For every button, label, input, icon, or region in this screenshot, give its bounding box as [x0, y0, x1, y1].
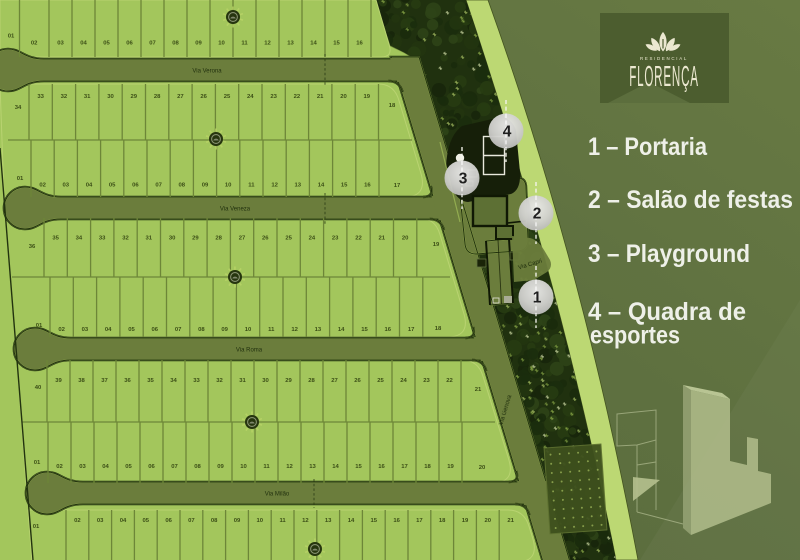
svg-text:4: 4: [503, 124, 512, 141]
svg-text:21: 21: [379, 236, 386, 242]
svg-text:Via Veneza: Via Veneza: [220, 207, 251, 213]
svg-text:14: 14: [332, 464, 339, 470]
svg-text:3 – Playground: 3 – Playground: [588, 240, 750, 268]
svg-text:32: 32: [61, 94, 68, 100]
svg-text:02: 02: [74, 518, 81, 524]
svg-text:02: 02: [31, 41, 38, 47]
svg-text:33: 33: [193, 378, 200, 384]
svg-text:03: 03: [82, 327, 89, 333]
svg-text:38: 38: [78, 378, 85, 384]
svg-text:22: 22: [294, 94, 301, 100]
svg-text:08: 08: [172, 41, 179, 47]
svg-text:10: 10: [245, 327, 252, 333]
svg-text:15: 15: [371, 518, 378, 524]
svg-text:16: 16: [393, 518, 400, 524]
svg-text:23: 23: [423, 378, 430, 384]
svg-text:40: 40: [35, 385, 42, 391]
svg-text:33: 33: [37, 94, 44, 100]
svg-text:18: 18: [389, 103, 396, 109]
svg-text:24: 24: [309, 236, 316, 242]
svg-text:17: 17: [408, 327, 415, 333]
svg-text:20: 20: [340, 94, 347, 100]
svg-text:04: 04: [105, 327, 112, 333]
svg-text:07: 07: [188, 518, 195, 524]
svg-text:05: 05: [125, 464, 132, 470]
svg-text:06: 06: [165, 518, 172, 524]
svg-text:3: 3: [459, 171, 468, 188]
svg-text:16: 16: [356, 41, 363, 47]
svg-text:09: 09: [195, 41, 202, 47]
svg-text:14: 14: [310, 41, 317, 47]
svg-text:03: 03: [63, 183, 70, 189]
svg-text:esportes: esportes: [590, 322, 680, 350]
svg-text:02: 02: [56, 464, 63, 470]
svg-text:29: 29: [192, 236, 199, 242]
svg-text:Via Roma: Via Roma: [236, 348, 263, 354]
svg-text:15: 15: [333, 41, 340, 47]
svg-text:09: 09: [217, 464, 224, 470]
svg-text:36: 36: [29, 244, 36, 250]
svg-text:10: 10: [240, 464, 247, 470]
svg-text:1: 1: [533, 290, 542, 307]
svg-text:27: 27: [331, 378, 338, 384]
svg-text:29: 29: [285, 378, 292, 384]
svg-text:03: 03: [97, 518, 104, 524]
svg-text:21: 21: [317, 94, 324, 100]
svg-text:17: 17: [394, 183, 401, 189]
svg-text:22: 22: [446, 378, 453, 384]
svg-text:15: 15: [341, 183, 348, 189]
svg-text:01: 01: [33, 524, 40, 530]
svg-text:19: 19: [447, 464, 454, 470]
svg-text:13: 13: [287, 41, 294, 47]
svg-text:25: 25: [285, 236, 292, 242]
svg-text:05: 05: [109, 183, 116, 189]
svg-text:17: 17: [401, 464, 408, 470]
svg-text:01: 01: [8, 34, 15, 40]
svg-text:04: 04: [102, 464, 109, 470]
svg-text:05: 05: [103, 41, 110, 47]
svg-text:Via Milão: Via Milão: [265, 492, 290, 498]
svg-text:05: 05: [143, 518, 150, 524]
svg-text:14: 14: [318, 183, 325, 189]
svg-text:26: 26: [200, 94, 207, 100]
svg-text:30: 30: [262, 378, 269, 384]
svg-text:22: 22: [355, 236, 362, 242]
svg-text:06: 06: [148, 464, 155, 470]
svg-text:04: 04: [120, 518, 127, 524]
svg-text:30: 30: [169, 236, 176, 242]
svg-text:26: 26: [354, 378, 361, 384]
svg-text:17: 17: [416, 518, 423, 524]
svg-text:03: 03: [79, 464, 86, 470]
svg-text:FLORENÇA: FLORENÇA: [629, 60, 699, 93]
svg-text:32: 32: [122, 236, 129, 242]
svg-text:04: 04: [80, 41, 87, 47]
svg-text:28: 28: [308, 378, 315, 384]
svg-text:09: 09: [202, 183, 209, 189]
svg-text:12: 12: [286, 464, 293, 470]
svg-text:24: 24: [400, 378, 407, 384]
svg-text:19: 19: [364, 94, 371, 100]
svg-text:20: 20: [402, 236, 409, 242]
svg-text:2: 2: [533, 206, 542, 223]
svg-text:07: 07: [171, 464, 178, 470]
svg-text:01: 01: [17, 176, 24, 182]
svg-text:31: 31: [239, 378, 246, 384]
svg-text:11: 11: [248, 183, 255, 189]
svg-text:35: 35: [52, 236, 59, 242]
svg-text:18: 18: [435, 326, 442, 332]
svg-text:08: 08: [211, 518, 218, 524]
svg-text:05: 05: [128, 327, 135, 333]
svg-text:1 – Portaria: 1 – Portaria: [588, 133, 708, 161]
svg-text:34: 34: [76, 236, 83, 242]
svg-text:25: 25: [224, 94, 231, 100]
svg-text:27: 27: [239, 236, 246, 242]
svg-text:23: 23: [332, 236, 339, 242]
svg-text:2 – Salão de festas: 2 – Salão de festas: [588, 186, 793, 214]
svg-text:18: 18: [439, 518, 446, 524]
svg-text:24: 24: [247, 94, 254, 100]
svg-text:28: 28: [215, 236, 222, 242]
svg-text:11: 11: [263, 464, 270, 470]
svg-text:10: 10: [257, 518, 264, 524]
svg-text:27: 27: [177, 94, 184, 100]
svg-text:04: 04: [86, 183, 93, 189]
svg-text:31: 31: [84, 94, 91, 100]
svg-text:15: 15: [361, 327, 368, 333]
svg-text:31: 31: [146, 236, 153, 242]
svg-text:13: 13: [325, 518, 332, 524]
svg-text:18: 18: [424, 464, 431, 470]
svg-text:06: 06: [126, 41, 133, 47]
svg-text:14: 14: [338, 327, 345, 333]
svg-text:33: 33: [99, 236, 106, 242]
svg-text:16: 16: [364, 183, 371, 189]
svg-text:13: 13: [315, 327, 322, 333]
svg-text:12: 12: [291, 327, 298, 333]
svg-text:12: 12: [271, 183, 278, 189]
svg-text:16: 16: [378, 464, 385, 470]
svg-text:06: 06: [152, 327, 159, 333]
svg-text:01: 01: [36, 323, 43, 329]
svg-text:11: 11: [279, 518, 286, 524]
svg-text:12: 12: [302, 518, 309, 524]
svg-text:07: 07: [175, 327, 182, 333]
svg-text:21: 21: [507, 518, 514, 524]
svg-text:11: 11: [268, 327, 275, 333]
svg-text:34: 34: [170, 378, 177, 384]
svg-text:13: 13: [295, 183, 302, 189]
svg-text:Via Verona: Via Verona: [192, 69, 222, 75]
svg-text:13: 13: [309, 464, 316, 470]
svg-text:25: 25: [377, 378, 384, 384]
svg-text:12: 12: [264, 41, 271, 47]
svg-text:07: 07: [155, 183, 162, 189]
svg-text:14: 14: [348, 518, 355, 524]
svg-text:32: 32: [216, 378, 223, 384]
svg-text:20: 20: [485, 518, 492, 524]
svg-text:02: 02: [39, 183, 46, 189]
svg-text:37: 37: [101, 378, 108, 384]
svg-text:26: 26: [262, 236, 269, 242]
svg-text:34: 34: [15, 105, 22, 111]
svg-text:02: 02: [58, 327, 65, 333]
svg-text:09: 09: [221, 327, 228, 333]
svg-text:16: 16: [385, 327, 392, 333]
svg-text:08: 08: [194, 464, 201, 470]
svg-text:35: 35: [147, 378, 154, 384]
svg-text:29: 29: [131, 94, 138, 100]
svg-text:01: 01: [34, 460, 41, 466]
svg-text:39: 39: [55, 378, 62, 384]
svg-text:10: 10: [225, 183, 232, 189]
svg-text:07: 07: [149, 41, 156, 47]
svg-text:08: 08: [198, 327, 205, 333]
svg-text:30: 30: [107, 94, 114, 100]
svg-text:11: 11: [241, 41, 248, 47]
svg-text:19: 19: [433, 242, 440, 248]
svg-text:20: 20: [479, 465, 486, 471]
svg-text:03: 03: [57, 41, 64, 47]
svg-text:10: 10: [218, 41, 225, 47]
svg-text:06: 06: [132, 183, 139, 189]
svg-text:28: 28: [154, 94, 161, 100]
svg-text:23: 23: [270, 94, 277, 100]
svg-text:19: 19: [462, 518, 469, 524]
svg-text:09: 09: [234, 518, 241, 524]
svg-text:36: 36: [124, 378, 131, 384]
svg-text:21: 21: [475, 387, 482, 393]
svg-text:08: 08: [179, 183, 186, 189]
svg-text:15: 15: [355, 464, 362, 470]
